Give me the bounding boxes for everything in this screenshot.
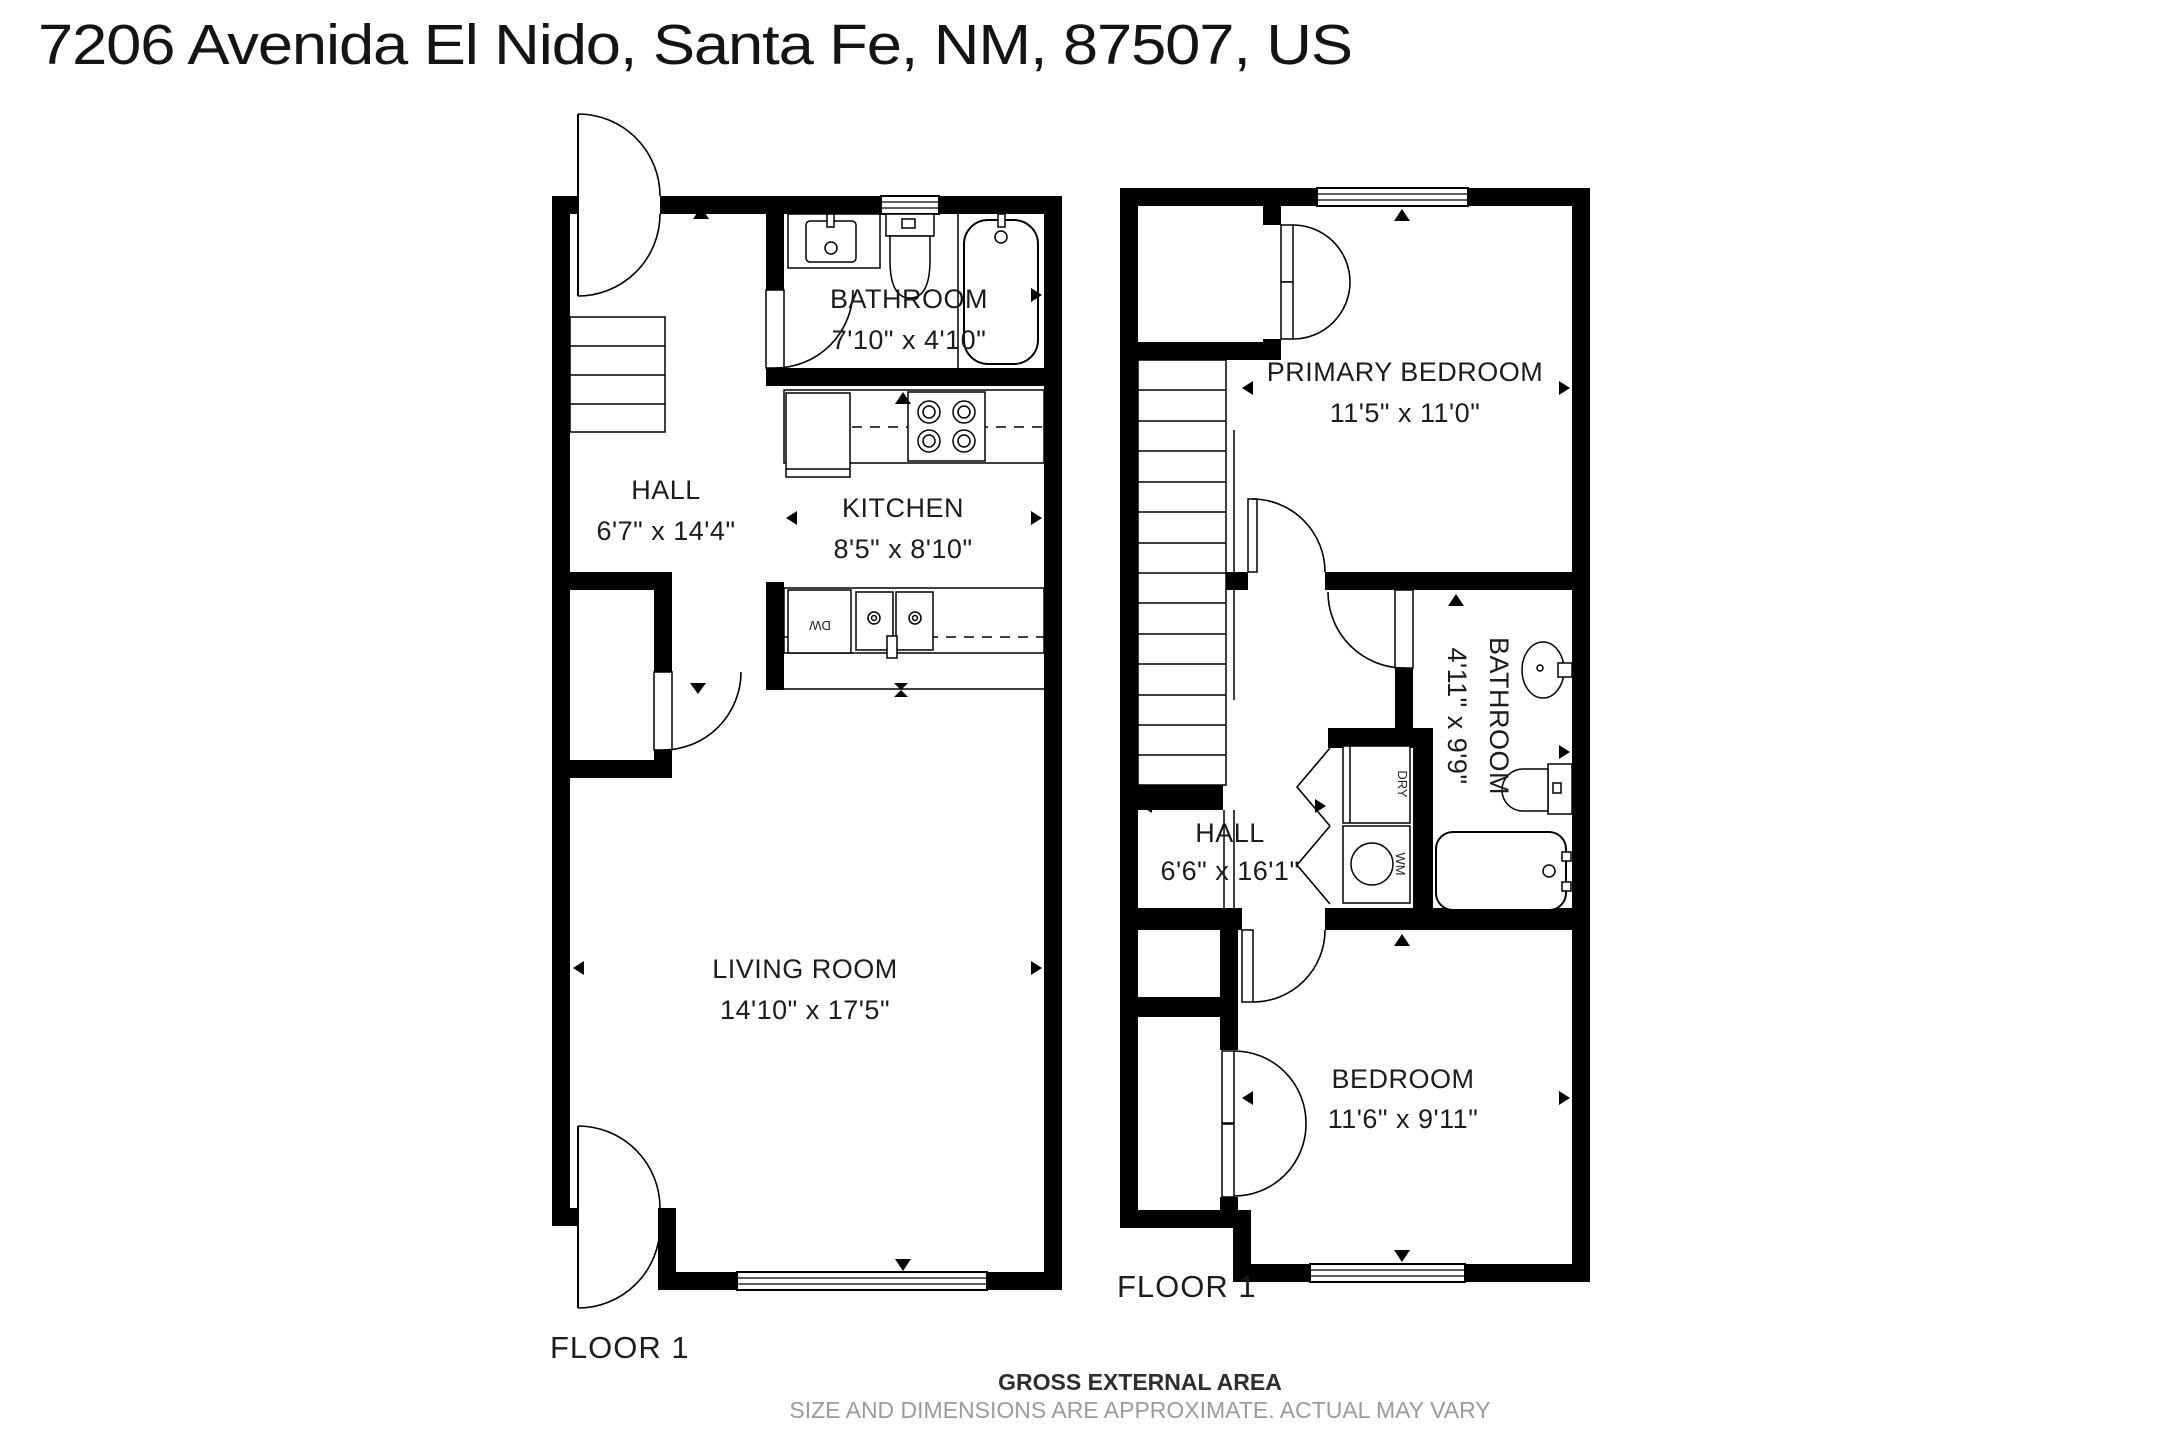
room-label-bathroom-rotated: BATHROOM 4'11" x 9'9"	[1442, 637, 1514, 795]
room-dims-kitchen: 8'5" x 8'10"	[833, 534, 972, 564]
window	[1317, 188, 1468, 206]
room-dims-bathroom: 7'10" x 4'10"	[832, 325, 987, 355]
washing-machine: WM	[1343, 826, 1410, 903]
floor-plan-page: 7206 Avenida El Nido, Santa Fe, NM, 8750…	[0, 0, 2173, 1448]
stove	[908, 392, 985, 461]
room-label-bedroom: BEDROOM	[1331, 1064, 1474, 1094]
room-label-primary: PRIMARY BEDROOM	[1267, 357, 1544, 387]
bedroom-door	[1242, 930, 1325, 1002]
stairs	[570, 317, 665, 432]
room-label-living: LIVING ROOM	[712, 954, 898, 984]
room-dims-hall: 6'6" x 16'1"	[1160, 856, 1299, 886]
washer-label: WM	[1393, 852, 1408, 875]
room-label-kitchen: KITCHEN	[842, 493, 964, 523]
room-dims-primary: 11'5" x 11'0"	[1330, 398, 1481, 428]
room-dims-hall: 6'7" x 14'4"	[596, 516, 735, 546]
floor-plan-left: DW BATHROOM 7'10" x 4'	[550, 114, 1062, 1365]
floor-plan-canvas: 7206 Avenida El Nido, Santa Fe, NM, 8750…	[0, 0, 2173, 1448]
room-label-bathroom: BATHROOM	[1484, 637, 1514, 795]
bifold-doors	[1297, 748, 1330, 904]
bathroom-sink	[788, 214, 880, 268]
floor-label-left: FLOOR 1	[550, 1330, 690, 1365]
bathroom-sink	[1522, 642, 1572, 698]
room-dims-bathroom: 4'11" x 9'9"	[1442, 647, 1472, 784]
bathtub	[1436, 832, 1571, 910]
fridge	[786, 393, 850, 477]
closet-door	[654, 672, 741, 750]
window	[1310, 1264, 1465, 1282]
room-label-bathroom: BATHROOM	[830, 284, 988, 314]
room-dims-living: 14'10" x 17'5"	[720, 995, 890, 1025]
footer-gross-area: GROSS EXTERNAL AREA	[998, 1369, 1282, 1395]
window	[881, 196, 939, 214]
closet-double-door	[1222, 1051, 1306, 1197]
dishwasher-label: DW	[808, 618, 830, 633]
kitchen-counter-bottom: DW	[784, 588, 1044, 689]
entry-door	[578, 114, 660, 296]
bathroom-door	[1328, 590, 1413, 668]
window	[737, 1272, 987, 1290]
floor-label-right: FLOOR 1	[1117, 1269, 1257, 1304]
bedroom-door	[1248, 499, 1325, 572]
kitchen-counter-top	[784, 390, 1044, 477]
patio-door	[578, 1126, 660, 1308]
footer-disclaimer: SIZE AND DIMENSIONS ARE APPROXIMATE. ACT…	[789, 1397, 1490, 1423]
room-dims-bedroom: 11'6" x 9'11"	[1328, 1104, 1479, 1134]
laundry-closet: DRY WM	[1297, 746, 1410, 904]
dryer-label: DRY	[1395, 770, 1410, 798]
closet-double-door	[1281, 225, 1350, 339]
room-label-hall: HALL	[1195, 818, 1265, 848]
address-title: 7206 Avenida El Nido, Santa Fe, NM, 8750…	[38, 13, 1352, 77]
room-label-hall: HALL	[631, 475, 701, 505]
floor-plan-right: DRY WM	[1117, 188, 1590, 1304]
